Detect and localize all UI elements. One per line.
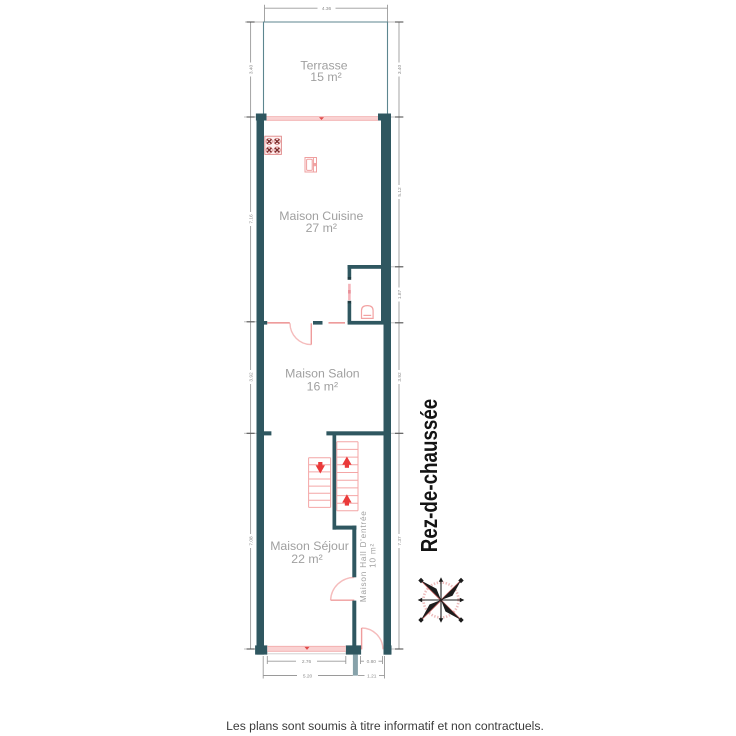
svg-text:Maison Hall D'entrée: Maison Hall D'entrée: [359, 510, 368, 602]
svg-text:15 m²: 15 m²: [310, 70, 341, 84]
svg-text:5.20: 5.20: [303, 674, 313, 680]
svg-text:7.37: 7.37: [397, 536, 403, 546]
svg-text:0.80: 0.80: [367, 659, 377, 665]
svg-text:22 m²: 22 m²: [291, 552, 322, 566]
svg-text:Les plans sont soumis à titre: Les plans sont soumis à titre informatif…: [226, 719, 544, 733]
svg-text:3.40: 3.40: [397, 65, 403, 75]
svg-text:7.08: 7.08: [249, 536, 255, 546]
svg-text:1.21: 1.21: [367, 674, 377, 680]
svg-text:27 m²: 27 m²: [306, 221, 337, 235]
svg-text:10 m²: 10 m²: [369, 543, 378, 568]
svg-text:3.92: 3.92: [397, 372, 403, 382]
svg-text:4.36: 4.36: [322, 6, 332, 12]
svg-text:3.40: 3.40: [249, 65, 255, 75]
svg-text:3.92: 3.92: [249, 372, 255, 382]
svg-text:1.87: 1.87: [397, 290, 403, 300]
svg-text:Maison Salon: Maison Salon: [285, 366, 360, 380]
svg-text:2.76: 2.76: [302, 659, 312, 665]
svg-text:7.16: 7.16: [249, 214, 255, 224]
svg-text:Rez-de-chaussée: Rez-de-chaussée: [416, 399, 443, 553]
svg-text:5.12: 5.12: [397, 187, 403, 197]
svg-text:16 m²: 16 m²: [307, 380, 338, 394]
